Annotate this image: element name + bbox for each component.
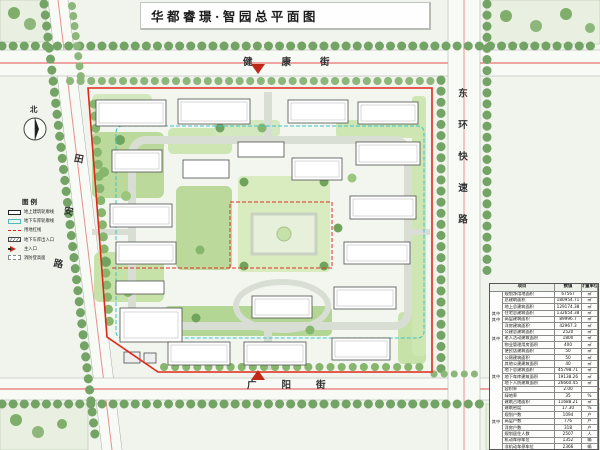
legend-item-label: 地下车库轮廓线 bbox=[24, 218, 54, 224]
building bbox=[344, 242, 410, 264]
street-label-right: 东环快速路 bbox=[454, 88, 468, 246]
table-header-value: 数值 bbox=[555, 284, 582, 292]
north-label: 北 bbox=[30, 104, 38, 115]
street-label-top: 健康街 bbox=[243, 54, 359, 68]
building bbox=[244, 342, 306, 365]
legend-item-label: 消防登高面 bbox=[24, 255, 45, 261]
building bbox=[178, 99, 250, 124]
building bbox=[350, 196, 416, 219]
building bbox=[332, 338, 390, 360]
street-label-bottom: 广阳街 bbox=[247, 377, 351, 391]
technical-indicators-table: 项目 数值 计量单位 规划净用地面积 67567 ㎡ 总建筑面积 180954.… bbox=[489, 283, 599, 450]
building bbox=[116, 281, 164, 294]
legend-item-label: 主入口 bbox=[24, 246, 37, 252]
site-area bbox=[88, 64, 432, 380]
table-body: 规划净用地面积 67567 ㎡ 总建筑面积 180954.71 ㎡ 地上总建筑面… bbox=[490, 292, 598, 450]
legend-red-line-icon bbox=[8, 230, 21, 231]
building bbox=[356, 142, 420, 165]
table-header-row: 项目 数值 计量单位 bbox=[490, 284, 598, 292]
legend-fire-access-icon bbox=[8, 255, 21, 260]
building bbox=[168, 342, 230, 365]
building bbox=[110, 204, 172, 227]
building bbox=[238, 142, 284, 157]
north-arrow-icon bbox=[24, 118, 46, 140]
drawing-title-box: 华都睿璟·智园总平面图 bbox=[140, 2, 431, 30]
table-cell-unit: 辆 bbox=[582, 444, 598, 450]
table-row: 非机动车停车位 2366 辆 bbox=[490, 444, 598, 450]
table-cell-label: 非机动车停车位 bbox=[503, 444, 555, 450]
legend-item-label: 地上建筑轮廓线 bbox=[24, 209, 54, 215]
building bbox=[288, 100, 348, 123]
building bbox=[358, 102, 418, 124]
building bbox=[334, 287, 396, 309]
building bbox=[112, 150, 162, 172]
building bbox=[183, 160, 229, 178]
table-cell-value: 2366 bbox=[555, 444, 582, 450]
table-header-unit: 计量单位 bbox=[582, 284, 598, 292]
table-header-item: 项目 bbox=[490, 284, 555, 292]
building bbox=[252, 296, 312, 318]
page-title: 华都睿璟·智园总平面图 bbox=[141, 6, 319, 25]
table-cell-group bbox=[490, 444, 503, 450]
kindergarten-building bbox=[120, 308, 182, 342]
legend: 图例 地上建筑轮廓线 地下车库轮廓线 用地红线 地下车库出入口 主入口 消防登高… bbox=[8, 196, 68, 264]
legend-item-label: 地下车库出入口 bbox=[24, 237, 54, 243]
legend-title: 图例 bbox=[22, 196, 68, 206]
building bbox=[96, 100, 166, 126]
legend-building-outline-icon bbox=[8, 210, 21, 215]
legend-item-label: 用地红线 bbox=[24, 227, 41, 233]
building bbox=[292, 158, 342, 180]
legend-main-entrance-icon bbox=[8, 246, 21, 252]
building bbox=[116, 242, 176, 264]
site-plan-sheet: 华都睿璟·智园总平面图 健康街 广阳街 东环快速路 田安路 北 图例 地上建筑轮… bbox=[0, 0, 600, 450]
legend-garage-entrance-icon bbox=[8, 237, 21, 242]
legend-garage-outline-icon bbox=[8, 219, 21, 224]
utility-building bbox=[144, 353, 156, 363]
